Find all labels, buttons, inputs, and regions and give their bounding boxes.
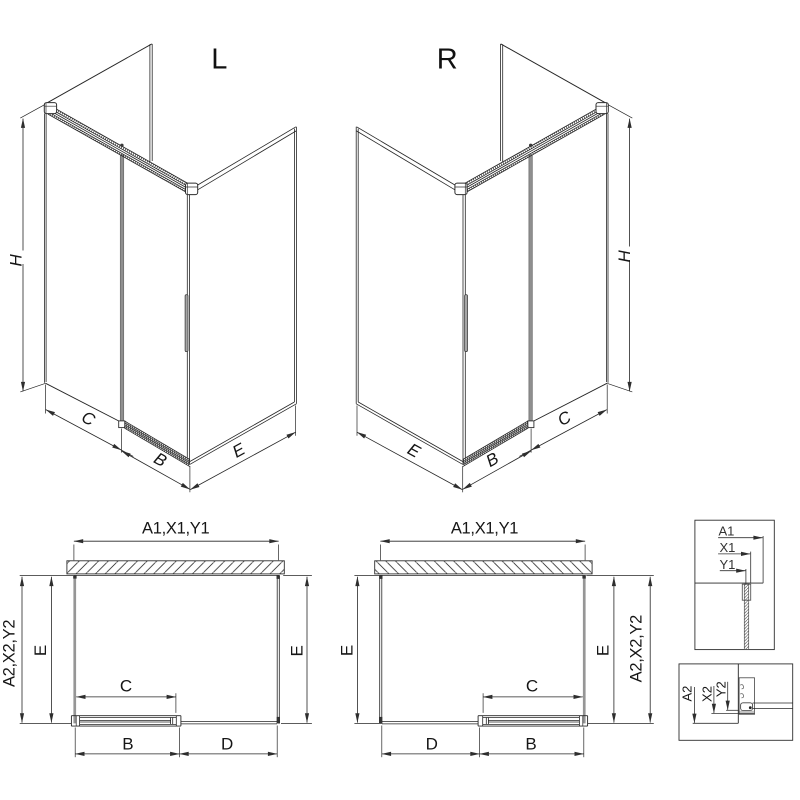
svg-text:H: H	[6, 253, 25, 266]
svg-text:X1: X1	[720, 540, 736, 555]
svg-text:L: L	[211, 44, 227, 76]
svg-text:D: D	[426, 734, 438, 753]
svg-text:D: D	[221, 734, 233, 753]
svg-text:C: C	[120, 676, 132, 695]
svg-text:B: B	[122, 734, 133, 753]
svg-text:E: E	[594, 645, 613, 656]
svg-text:E: E	[31, 645, 50, 656]
svg-text:C: C	[526, 676, 538, 695]
svg-text:A2,X2,Y2: A2,X2,Y2	[628, 615, 646, 682]
svg-text:A1,X1,Y1: A1,X1,Y1	[142, 520, 209, 538]
svg-text:B: B	[525, 734, 536, 753]
svg-text:A2,X2,Y2: A2,X2,Y2	[0, 620, 18, 687]
svg-text:Y2: Y2	[714, 681, 729, 697]
svg-text:A1,X1,Y1: A1,X1,Y1	[451, 520, 518, 538]
svg-text:X2: X2	[700, 686, 715, 702]
svg-text:E: E	[338, 645, 357, 656]
svg-text:E: E	[287, 645, 306, 656]
svg-text:H: H	[615, 249, 634, 262]
svg-text:A1: A1	[719, 524, 735, 539]
svg-text:R: R	[437, 44, 458, 76]
svg-text:A2: A2	[680, 686, 695, 702]
svg-text:Y1: Y1	[720, 557, 736, 572]
